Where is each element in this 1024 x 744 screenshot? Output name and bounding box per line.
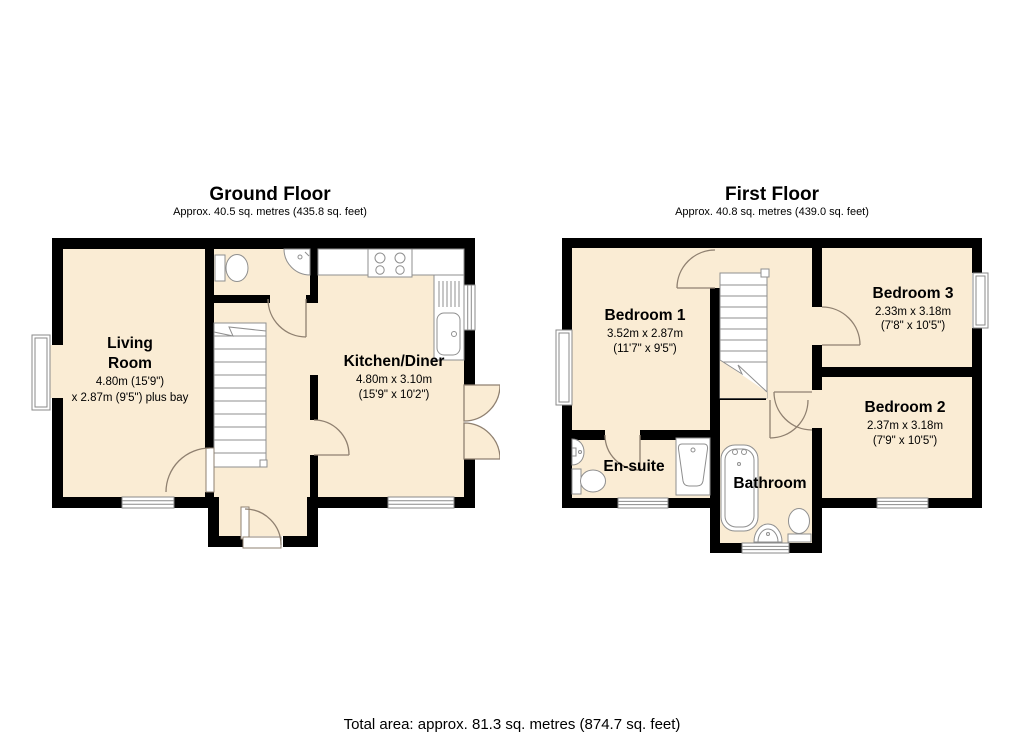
ground-floor-subtitle: Approx. 40.5 sq. metres (435.8 sq. feet) bbox=[70, 206, 470, 218]
toilet-icon bbox=[215, 255, 248, 282]
bedroom2-dim2: (7'9" x 10'5") bbox=[873, 435, 938, 447]
kitchen-window-right bbox=[464, 285, 475, 330]
bathroom-toilet-icon bbox=[788, 509, 811, 543]
bedroom3-window bbox=[973, 273, 988, 328]
bedroom1-window bbox=[556, 330, 572, 405]
porch-area bbox=[219, 497, 307, 536]
bedroom3-name: Bedroom 3 bbox=[873, 285, 954, 302]
first-floor-subtitle: Approx. 40.8 sq. metres (439.0 sq. feet) bbox=[572, 206, 972, 218]
bedroom1-label: Bedroom 1 3.52m x 2.87m (11'7" x 9'5") bbox=[605, 307, 686, 355]
kitchen-diner-dim1: 4.80m x 3.10m bbox=[356, 374, 432, 386]
bathroom-window bbox=[742, 543, 789, 553]
shower-icon bbox=[676, 438, 710, 495]
ground-floor-title: Ground Floor bbox=[70, 184, 470, 206]
kitchen-diner-label: Kitchen/Diner 4.80m x 3.10m (15'9" x 10'… bbox=[344, 353, 445, 401]
bedroom2-name: Bedroom 2 bbox=[865, 399, 946, 416]
bedroom1-dim2: (11'7" x 9'5") bbox=[613, 343, 677, 355]
ensuite-toilet-icon bbox=[572, 469, 606, 494]
bedroom2-dim1: 2.37m x 3.18m bbox=[867, 420, 943, 432]
first-floor-title: First Floor bbox=[572, 184, 972, 206]
bedroom3-dim1: 2.33m x 3.18m bbox=[875, 306, 951, 318]
sink-icon bbox=[437, 313, 460, 355]
living-room-name1: Living bbox=[107, 335, 153, 352]
kitchen-diner-name: Kitchen/Diner bbox=[344, 353, 445, 370]
bedroom1-name: Bedroom 1 bbox=[605, 307, 686, 324]
stairs-icon bbox=[720, 269, 769, 398]
bedroom1-dim1: 3.52m x 2.87m bbox=[607, 328, 683, 340]
first-floor-plan: Bedroom 1 3.52m x 2.87m (11'7" x 9'5") B… bbox=[552, 235, 1002, 565]
floorplan-page: Ground Floor Approx. 40.5 sq. metres (43… bbox=[0, 0, 1024, 744]
stairs-icon bbox=[214, 323, 267, 467]
kitchen-diner-dim2: (15'9" x 10'2") bbox=[359, 389, 430, 401]
total-area-text: Total area: approx. 81.3 sq. metres (874… bbox=[0, 716, 1024, 733]
ensuite-window bbox=[618, 498, 668, 508]
ensuite-label: En-suite bbox=[603, 458, 665, 475]
ground-floor-plan: Living Room 4.80m (15'9") x 2.87m (9'5")… bbox=[30, 235, 500, 565]
bathroom-label: Bathroom bbox=[733, 475, 806, 492]
kitchen-window-bottom bbox=[388, 497, 454, 508]
living-room-window bbox=[122, 497, 174, 508]
hob-icon bbox=[368, 249, 412, 277]
bay-window bbox=[32, 335, 50, 410]
bedroom2-label: Bedroom 2 2.37m x 3.18m (7'9" x 10'5") bbox=[865, 399, 946, 447]
living-room-dim2: x 2.87m (9'5") plus bay bbox=[72, 392, 189, 404]
living-room-name2: Room bbox=[108, 355, 152, 372]
bedroom2-window bbox=[877, 498, 928, 508]
french-doors bbox=[464, 385, 500, 459]
bay-floor-area bbox=[50, 345, 63, 398]
bedroom3-label: Bedroom 3 2.33m x 3.18m (7'8" x 10'5") bbox=[873, 285, 954, 332]
living-room-dim1: 4.80m (15'9") bbox=[96, 376, 164, 388]
bedroom3-dim2: (7'8" x 10'5") bbox=[881, 320, 946, 332]
